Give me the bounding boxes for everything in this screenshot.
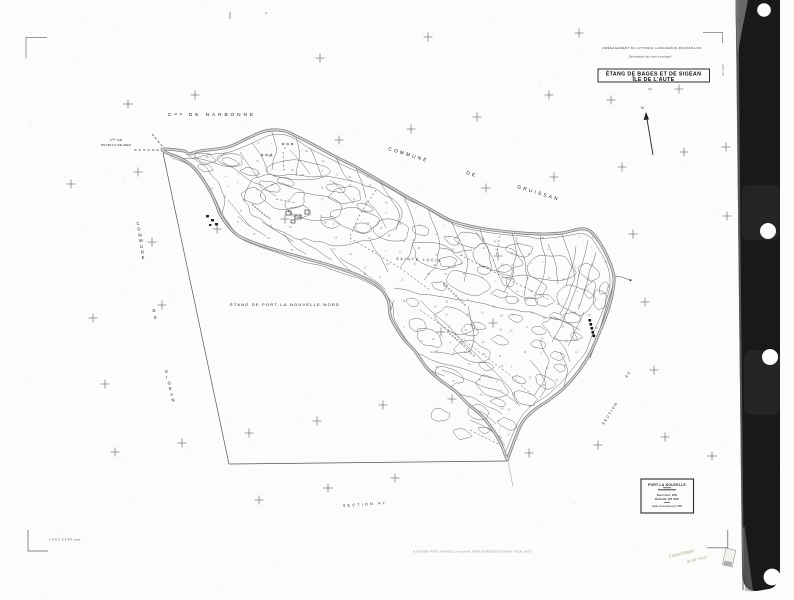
- svg-text:7: 7: [398, 314, 400, 317]
- svg-text:12: 12: [575, 351, 578, 354]
- svg-text:12: 12: [529, 377, 532, 380]
- svg-text:31: 31: [355, 226, 358, 229]
- svg-text:(2): (2): [648, 87, 652, 91]
- svg-text:28: 28: [445, 300, 448, 303]
- svg-text:63: 63: [548, 277, 551, 280]
- svg-text:4: 4: [227, 185, 229, 188]
- svg-text:SAINTE LUCIE: SAINTE LUCIE: [396, 257, 442, 263]
- svg-text:45: 45: [267, 237, 270, 240]
- svg-text:7: 7: [557, 356, 559, 359]
- svg-text:DE: DE: [465, 170, 478, 179]
- svg-text:28: 28: [451, 249, 454, 252]
- svg-text:31: 31: [256, 160, 259, 163]
- svg-text:7: 7: [271, 143, 273, 146]
- svg-text:24: 24: [501, 263, 504, 266]
- svg-text:31: 31: [336, 173, 339, 176]
- svg-text:SECTION: SECTION: [601, 401, 618, 426]
- svg-text:N: N: [641, 106, 644, 110]
- svg-text:SECTION AY: SECTION AY: [343, 501, 387, 508]
- svg-text:63: 63: [499, 329, 502, 332]
- svg-text:9: 9: [322, 170, 324, 173]
- svg-text:CME DE NARBONNE: CME DE NARBONNE: [168, 112, 256, 118]
- svg-text:7: 7: [591, 246, 593, 249]
- svg-text:N: N: [172, 398, 175, 403]
- svg-text:C.N.R.S.-C.E.P.E. mars: C.N.R.S.-C.E.P.E. mars: [49, 539, 81, 542]
- svg-text:12: 12: [448, 326, 451, 329]
- svg-text:9: 9: [579, 236, 581, 239]
- svg-text:63: 63: [434, 306, 437, 309]
- svg-text:COMMUNE: COMMUNE: [387, 146, 429, 164]
- svg-text:7: 7: [420, 330, 422, 333]
- svg-text:45: 45: [353, 198, 356, 201]
- svg-text:28: 28: [301, 174, 304, 177]
- svg-text:28: 28: [363, 272, 366, 275]
- svg-text:7: 7: [542, 261, 544, 264]
- svg-text:18: 18: [399, 223, 402, 226]
- svg-text:E: E: [154, 315, 157, 320]
- svg-text:63: 63: [365, 202, 368, 205]
- svg-text:56: 56: [496, 249, 499, 252]
- svg-text:63: 63: [605, 261, 608, 264]
- svg-text:45: 45: [541, 338, 544, 341]
- svg-text:63: 63: [515, 238, 518, 241]
- svg-text:24: 24: [516, 291, 519, 294]
- svg-text:63: 63: [555, 379, 558, 382]
- svg-text:28: 28: [510, 330, 513, 333]
- svg-text:4: 4: [482, 277, 484, 280]
- svg-text:7: 7: [499, 429, 501, 432]
- svg-text:CME DE: CME DE: [110, 138, 123, 142]
- svg-text:4: 4: [258, 143, 260, 146]
- svg-text:45: 45: [542, 384, 545, 387]
- svg-text:45: 45: [305, 150, 308, 153]
- svg-text:56: 56: [595, 327, 598, 330]
- svg-text:18: 18: [478, 379, 481, 382]
- svg-text:M: M: [139, 238, 143, 243]
- svg-text:7: 7: [444, 225, 446, 228]
- svg-text:31: 31: [483, 247, 486, 250]
- svg-text:E: E: [142, 255, 145, 260]
- svg-text:9: 9: [511, 366, 513, 369]
- svg-text:56: 56: [369, 184, 372, 187]
- svg-text:28: 28: [541, 237, 544, 240]
- svg-text:28: 28: [500, 314, 503, 317]
- svg-text:24: 24: [511, 252, 514, 255]
- svg-text:12: 12: [256, 189, 259, 192]
- svg-text:4: 4: [496, 380, 498, 383]
- svg-text:63: 63: [468, 363, 471, 366]
- svg-text:63: 63: [436, 253, 439, 256]
- svg-text:12: 12: [364, 266, 367, 269]
- svg-text:24: 24: [403, 240, 406, 243]
- svg-text:56: 56: [428, 273, 431, 276]
- svg-text:C: C: [137, 221, 140, 226]
- svg-text:„Délimitation des sites à: „Délimitation des sites à protéger‟: [628, 55, 672, 59]
- svg-text:4: 4: [540, 352, 542, 355]
- svg-text:GRUISSAN: GRUISSAN: [516, 184, 560, 203]
- svg-text:7: 7: [238, 173, 240, 176]
- svg-text:PORT-LA NOUVELLE: PORT-LA NOUVELLE: [648, 483, 687, 487]
- svg-text:63: 63: [194, 156, 197, 159]
- svg-text:9: 9: [379, 276, 381, 279]
- svg-text:4: 4: [260, 194, 262, 197]
- svg-text:4: 4: [531, 262, 533, 265]
- svg-text:24: 24: [525, 298, 528, 301]
- svg-text:407c 3/19: 407c 3/19: [721, 64, 725, 76]
- svg-text:45: 45: [464, 329, 467, 332]
- svg-text:9: 9: [526, 326, 528, 329]
- svg-text:4: 4: [449, 342, 451, 345]
- svg-text:56: 56: [388, 234, 391, 237]
- svg-text:12: 12: [445, 313, 448, 316]
- svg-text:45: 45: [436, 366, 439, 369]
- svg-text:4: 4: [547, 248, 549, 251]
- svg-text:63: 63: [481, 312, 484, 315]
- svg-text:N: N: [141, 250, 144, 255]
- svg-text:7: 7: [385, 250, 387, 253]
- svg-text:4: 4: [386, 212, 388, 215]
- svg-text:Échelle 1/5 000: Échelle 1/5 000: [655, 496, 679, 501]
- svg-text:G: G: [168, 380, 171, 385]
- svg-text:U: U: [140, 244, 143, 249]
- svg-text:31: 31: [460, 262, 463, 265]
- svg-text:12: 12: [284, 147, 287, 150]
- svg-text:12: 12: [482, 238, 485, 241]
- svg-text:24: 24: [320, 215, 323, 218]
- svg-text:28: 28: [321, 186, 324, 189]
- svg-text:18: 18: [337, 161, 340, 164]
- svg-text:12: 12: [482, 341, 485, 344]
- svg-text:9: 9: [453, 352, 455, 355]
- svg-text:9: 9: [501, 389, 503, 392]
- svg-text:45: 45: [386, 263, 389, 266]
- svg-text:18: 18: [524, 351, 527, 354]
- svg-text:45: 45: [591, 264, 594, 267]
- svg-text:24: 24: [499, 355, 502, 358]
- svg-text:28: 28: [435, 350, 438, 353]
- svg-text:28: 28: [501, 365, 504, 368]
- svg-text:31: 31: [546, 367, 549, 370]
- svg-text:7: 7: [415, 208, 417, 211]
- svg-text:12: 12: [399, 251, 402, 254]
- svg-text:7: 7: [447, 240, 449, 243]
- svg-text:I: I: [166, 375, 167, 380]
- svg-text:31: 31: [587, 278, 590, 281]
- svg-text:24: 24: [322, 160, 325, 163]
- svg-text:AMÉNAGEMENT DU LITTORAL LAN: AMÉNAGEMENT DU LITTORAL LANGUEDOC-ROUSSI…: [602, 45, 701, 50]
- svg-text:24: 24: [332, 248, 335, 251]
- svg-text:ÉTANG DE PORT-LA-NOUVELLE-NO: ÉTANG DE PORT-LA-NOUVELLE-NORD: [230, 302, 340, 307]
- svg-text:24: 24: [380, 227, 383, 230]
- svg-text:18: 18: [412, 239, 415, 242]
- svg-text:feuille renouvelée pour 196: feuille renouvelée pour 1965: [652, 505, 683, 508]
- svg-text:4: 4: [225, 175, 227, 178]
- svg-text:28: 28: [324, 222, 327, 225]
- svg-text:24: 24: [223, 196, 226, 199]
- svg-text:4: 4: [372, 250, 374, 253]
- svg-text:18: 18: [588, 314, 591, 317]
- svg-text:28: 28: [206, 156, 209, 159]
- svg-text:7: 7: [464, 339, 466, 342]
- svg-text:56: 56: [268, 155, 271, 158]
- svg-text:7: 7: [494, 280, 496, 283]
- svg-text:4: 4: [419, 223, 421, 226]
- svg-text:AU DOSSIER : PORT-LA-NOUVELLE: AU DOSSIER : PORT-LA-NOUVELLE - Section …: [413, 551, 532, 554]
- svg-text:9: 9: [512, 314, 514, 317]
- svg-text:7: 7: [515, 377, 517, 380]
- svg-text:9: 9: [239, 163, 241, 166]
- svg-text:56: 56: [367, 222, 370, 225]
- svg-text:A: A: [170, 392, 173, 397]
- svg-text:56: 56: [483, 353, 486, 356]
- svg-text:45: 45: [526, 278, 529, 281]
- svg-text:12: 12: [257, 173, 260, 176]
- svg-text:24: 24: [452, 380, 455, 383]
- svg-text:18: 18: [432, 338, 435, 341]
- svg-text:28: 28: [385, 202, 388, 205]
- svg-text:4: 4: [576, 290, 578, 293]
- svg-text:24: 24: [508, 408, 511, 411]
- svg-text:24: 24: [420, 340, 423, 343]
- svg-text:PEYRIAC-DE-MER: PEYRIAC-DE-MER: [101, 143, 132, 147]
- svg-text:45: 45: [403, 300, 406, 303]
- svg-text:28: 28: [480, 394, 483, 397]
- svg-text:45: 45: [271, 184, 274, 187]
- svg-text:12: 12: [253, 233, 256, 236]
- svg-text:M: M: [138, 232, 142, 237]
- svg-text:18: 18: [349, 253, 352, 256]
- svg-text:O: O: [137, 227, 141, 232]
- svg-text:12: 12: [321, 197, 324, 200]
- svg-text:AC: AC: [624, 370, 632, 379]
- svg-text:9: 9: [578, 274, 580, 277]
- svg-text:31: 31: [464, 351, 467, 354]
- svg-text:9: 9: [350, 241, 352, 244]
- svg-text:Île de l'Aute: Île de l'Aute: [686, 554, 708, 564]
- svg-text:56: 56: [291, 249, 294, 252]
- svg-text:9: 9: [333, 223, 335, 226]
- svg-text:31: 31: [513, 393, 516, 396]
- svg-text:45: 45: [418, 247, 421, 250]
- svg-text:ÎLE DE L'AUTE: ÎLE DE L'AUTE: [631, 75, 674, 83]
- svg-text:28: 28: [562, 279, 565, 282]
- svg-text:63: 63: [289, 226, 292, 229]
- svg-text:56: 56: [517, 299, 520, 302]
- svg-text:7: 7: [237, 182, 239, 185]
- svg-text:18: 18: [511, 265, 514, 268]
- svg-text:24: 24: [444, 273, 447, 276]
- svg-text:12: 12: [507, 434, 510, 437]
- svg-text:4: 4: [403, 326, 405, 329]
- svg-text:E: E: [169, 386, 172, 391]
- svg-text:31: 31: [562, 326, 565, 329]
- svg-text:63: 63: [414, 263, 417, 266]
- svg-text:12: 12: [574, 266, 577, 269]
- svg-text:56: 56: [501, 408, 504, 411]
- svg-text:9: 9: [333, 182, 335, 185]
- svg-text:9: 9: [461, 254, 463, 257]
- svg-text:31: 31: [368, 237, 371, 240]
- svg-text:63: 63: [291, 169, 294, 172]
- svg-text:7: 7: [588, 288, 590, 291]
- svg-text:28: 28: [334, 236, 337, 239]
- svg-text:45: 45: [494, 240, 497, 243]
- svg-text:12: 12: [236, 221, 239, 224]
- svg-text:12: 12: [608, 285, 611, 288]
- svg-text:56: 56: [349, 176, 352, 179]
- svg-text:S: S: [165, 369, 168, 374]
- svg-text:D: D: [153, 308, 156, 313]
- svg-text:31: 31: [240, 210, 243, 213]
- svg-text:9: 9: [404, 201, 406, 204]
- svg-text:31: 31: [401, 279, 404, 282]
